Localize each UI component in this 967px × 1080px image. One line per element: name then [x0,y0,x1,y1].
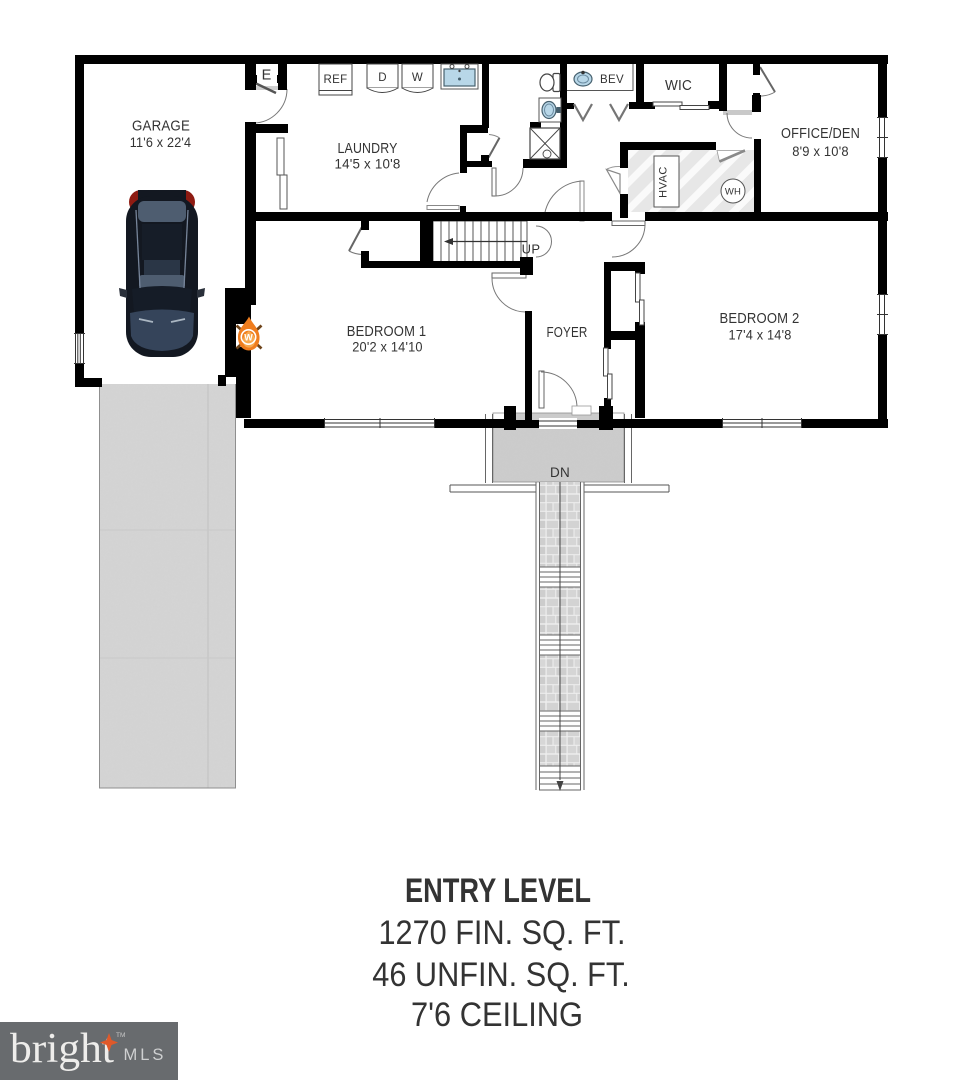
svg-text:HVAC: HVAC [658,166,670,198]
svg-text:BEDROOM 2: BEDROOM 2 [720,311,800,327]
svg-text:MLS: MLS [124,1046,167,1064]
svg-text:FOYER: FOYER [547,325,588,341]
svg-text:W: W [412,72,423,84]
svg-text:W: W [244,333,253,343]
svg-text:WH: WH [725,187,741,198]
svg-text:TM: TM [116,1032,125,1039]
svg-text:bright: bright [10,1026,114,1072]
svg-text:E: E [262,68,272,84]
svg-text:GARAGE: GARAGE [132,119,190,135]
svg-text:D: D [378,72,387,84]
svg-text:UP: UP [522,242,541,257]
svg-text:1270 FIN. SQ. FT.: 1270 FIN. SQ. FT. [379,914,626,952]
svg-text:LAUNDRY: LAUNDRY [338,141,398,157]
svg-text:17'4 x 14'8: 17'4 x 14'8 [729,328,792,343]
svg-text:BEDROOM 1: BEDROOM 1 [347,324,427,340]
svg-text:8'9 x 10'8: 8'9 x 10'8 [792,144,849,159]
svg-text:11'6 x 22'4: 11'6 x 22'4 [130,135,192,150]
svg-text:20'2 x 14'10: 20'2 x 14'10 [352,340,423,355]
svg-text:14'5 x 10'8: 14'5 x 10'8 [335,157,401,172]
svg-text:REF: REF [324,74,348,86]
svg-text:ENTRY LEVEL: ENTRY LEVEL [405,872,591,910]
svg-text:OFFICE/DEN: OFFICE/DEN [781,126,860,142]
svg-text:WIC: WIC [665,78,692,94]
svg-text:46 UNFIN. SQ. FT.: 46 UNFIN. SQ. FT. [372,956,630,994]
svg-text:DN: DN [550,465,570,480]
svg-text:7'6 CEILING: 7'6 CEILING [411,996,583,1034]
svg-text:BEV: BEV [600,74,624,86]
